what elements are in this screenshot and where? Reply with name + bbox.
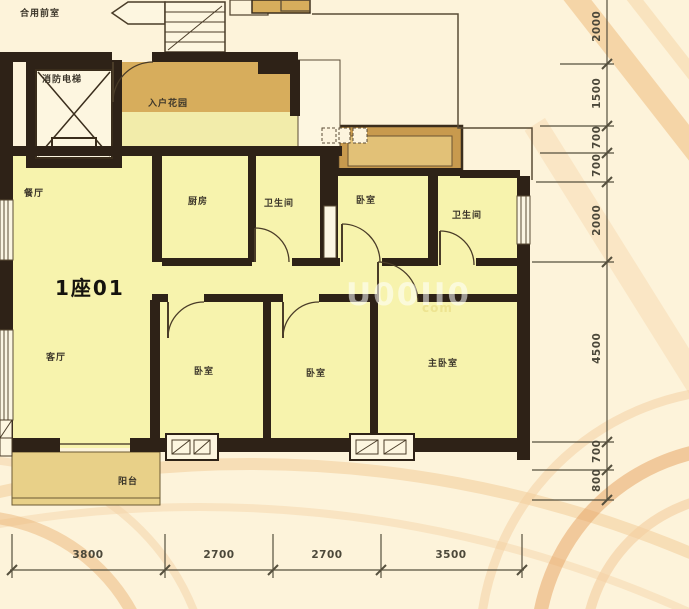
dim-right-700b: 700	[592, 135, 603, 195]
dim-bottom-2700b: 2700	[287, 550, 367, 561]
watermark-suffix: com	[422, 302, 453, 314]
room-label-bedroom-top: 卧室	[356, 197, 376, 206]
dim-bottom-2700a: 2700	[179, 550, 259, 561]
room-label-balcony: 阳台	[118, 478, 138, 487]
room-label-dining: 餐厅	[24, 190, 44, 199]
room-label-bathroom-1: 卫生间	[264, 200, 294, 209]
room-label-living: 客厅	[46, 354, 66, 363]
room-label-master-bedroom: 主卧室	[428, 360, 458, 369]
room-label-kitchen: 厨房	[188, 198, 208, 207]
floorplan-canvas: 合用前室 消防电梯 入户花园 餐厅 厨房 卫生间 卧室 卫生间 1座01 客厅 …	[0, 0, 689, 609]
watermark: U00II0 com	[346, 280, 471, 311]
room-label-shared-lobby: 合用前室	[20, 10, 60, 19]
dim-right-4500: 4500	[592, 318, 603, 378]
dim-bottom-3500: 3500	[411, 550, 491, 561]
room-label-entry-garden: 入户花园	[148, 100, 188, 109]
room-label-fire-elevator: 消防电梯	[42, 76, 82, 85]
dim-right-2000a: 2000	[592, 0, 603, 56]
room-label-bedroom-1: 卧室	[194, 368, 214, 377]
dim-right-2000b: 2000	[592, 190, 603, 250]
dim-bottom-3800: 3800	[48, 550, 128, 561]
dim-right-800: 800	[592, 450, 603, 510]
room-label-bathroom-2: 卫生间	[452, 212, 482, 221]
unit-number-label: 1座01	[55, 278, 125, 298]
floorplan-drawing	[0, 0, 689, 609]
room-label-bedroom-2: 卧室	[306, 370, 326, 379]
